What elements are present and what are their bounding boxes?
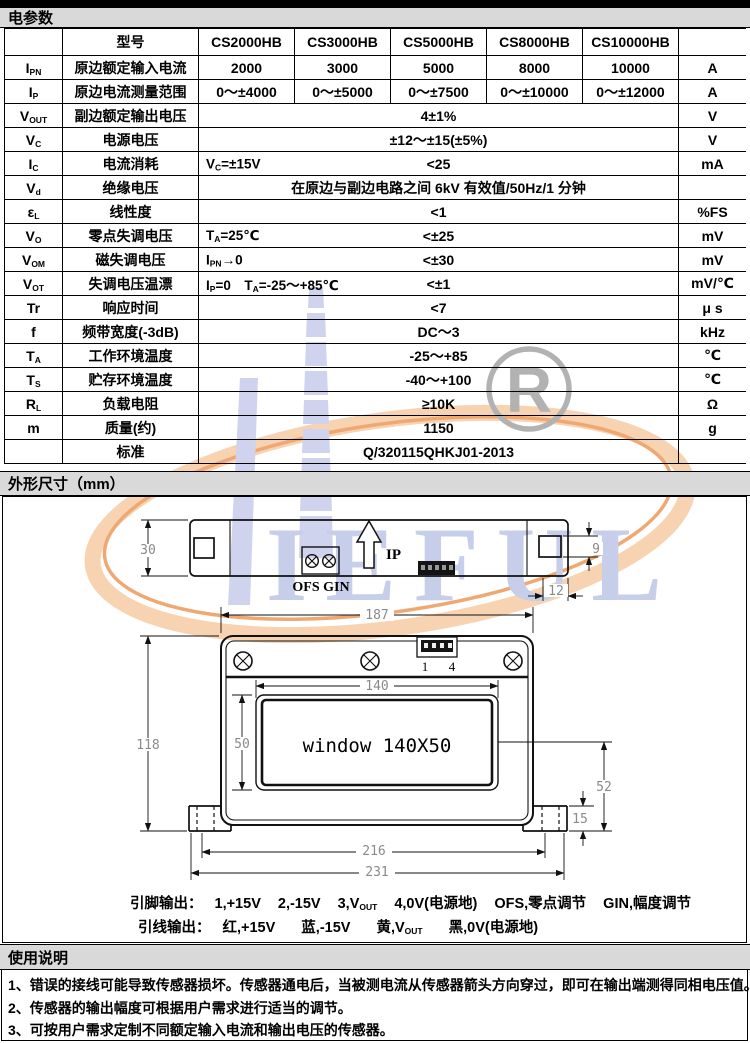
value-text: 4±1% — [421, 108, 457, 124]
symbol-cell: IPN — [5, 56, 63, 80]
subscript: OUT — [359, 902, 377, 912]
spec-row: RL负载电阻≥10KΩ — [5, 392, 747, 416]
subscript: P — [33, 91, 39, 101]
symbol-cell: VC — [5, 128, 63, 152]
merged-value-cell: 4±1% — [199, 104, 679, 128]
pin-number-first: 1 — [422, 659, 429, 674]
electrical-parameters-table: 型号CS2000HBCS3000HBCS5000HBCS8000HBCS1000… — [4, 28, 746, 471]
symbol-cell: VOM — [5, 248, 63, 272]
condition-text: VC=±15V — [206, 156, 260, 171]
pinout-label: 引线输出： — [138, 920, 211, 936]
value-cell: 10000 — [583, 56, 679, 80]
model-name-cell: CS8000HB — [487, 29, 583, 56]
terminal-block — [302, 547, 339, 574]
side-view-drawing — [141, 520, 598, 601]
value-cell: 3000 — [295, 56, 391, 80]
subscript: OM — [31, 259, 45, 269]
dim-label: 50 — [234, 737, 250, 752]
spec-row: TA工作环境温度-25～+85℃ — [5, 344, 747, 368]
spec-row: Tr响应时间<7μ s — [5, 296, 747, 320]
pinout-item: 黑,0V(电源地) — [449, 920, 538, 936]
spec-row: εL线性度<1%FS — [5, 200, 747, 224]
merged-value-cell: <7 — [199, 296, 679, 320]
pinout-pins-line: 引脚输出：1,+15V2,-15V3,VOUT4,0V(电源地)OFS,零点调节… — [130, 892, 708, 913]
unit-header-cell — [679, 29, 747, 56]
parameter-name-cell: 电源电压 — [63, 128, 199, 152]
model-header-row: 型号CS2000HBCS3000HBCS5000HBCS8000HBCS1000… — [5, 29, 747, 56]
parameter-name-cell: 标准 — [63, 440, 199, 464]
dim-label: 12 — [548, 584, 564, 599]
value-text: -40～+100 — [406, 372, 472, 388]
ip-arrow-icon — [357, 521, 381, 568]
dim-118 — [140, 636, 219, 831]
subscript: L — [34, 211, 39, 221]
symbol-cell: IC — [5, 152, 63, 176]
screw-icon — [234, 652, 522, 670]
value-text: ≥10K — [422, 396, 455, 412]
value-cell: 0～±7500 — [391, 80, 487, 104]
parameter-name-cell: 失调电压温漂 — [63, 272, 199, 296]
unit-cell: Ω — [679, 392, 747, 416]
parameter-name-cell: 电流消耗 — [63, 152, 199, 176]
section-title: 使用说明 — [8, 947, 68, 968]
subscript: OT — [32, 283, 44, 293]
model-row-label: 型号 — [63, 29, 199, 56]
unit-cell: g — [679, 416, 747, 440]
subscript: A — [35, 355, 41, 365]
subscript: C — [35, 139, 41, 149]
dim-label: 9 — [592, 542, 600, 557]
merged-value-cell: IPN→0<±30 — [199, 248, 679, 272]
condition-text: TA=25℃ — [206, 228, 260, 244]
merged-value-cell: IP=0 TA=-25～+85℃<±1 — [199, 272, 679, 296]
spec-row: IPN原边额定输入电流200030005000800010000A — [5, 56, 747, 80]
merged-value-cell: Q/320115QHKJ01-2013 — [199, 440, 679, 464]
symbol-cell: TA — [5, 344, 63, 368]
merged-value-cell: DC～3 — [199, 320, 679, 344]
unit-cell: ℃ — [679, 344, 747, 368]
dim-label: 231 — [365, 865, 388, 880]
spec-row: Vd绝缘电压在原边与副边电路之间 6kV 有效值/50Hz/1 分钟 — [5, 176, 747, 200]
value-text: <±30 — [423, 252, 454, 268]
subscript: A — [253, 284, 259, 294]
symbol-cell: f — [5, 320, 63, 344]
section-header-outline: 外形尺寸（mm） — [0, 471, 750, 496]
usage-notes: 1、错误的接线可能导致传感器损坏。传感器通电后，当被测电流从传感器箭头方向穿过，… — [1, 970, 748, 1041]
symbol-cell: m — [5, 416, 63, 440]
value-text: 1150 — [423, 420, 453, 436]
parameter-name-cell: 响应时间 — [63, 296, 199, 320]
spec-row: VOT失调电压温漂IP=0 TA=-25～+85℃<±1mV/℃ — [5, 272, 747, 296]
symbol-cell: Tr — [5, 296, 63, 320]
model-name-cell: CS5000HB — [391, 29, 487, 56]
parameter-name-cell: 零点失调电压 — [63, 224, 199, 248]
symbol-cell: IP — [5, 80, 63, 104]
pinout-wires-line: 引线输出：红,+15V蓝,-15V黄,VOUT黑,0V(电源地) — [138, 916, 564, 937]
corner-cell — [5, 29, 63, 56]
merged-value-cell: -25～+85 — [199, 344, 679, 368]
value-cell: 2000 — [199, 56, 295, 80]
dim-label: 52 — [596, 780, 612, 795]
spec-row: m质量(约)1150g — [5, 416, 747, 440]
subscript: OUT — [29, 115, 47, 125]
value-text: <±1 — [427, 276, 451, 292]
value-text: <±25 — [423, 228, 454, 244]
dim-label: 118 — [136, 738, 159, 753]
parameter-name-cell: 磁失调电压 — [63, 248, 199, 272]
unit-cell: mV — [679, 224, 747, 248]
spec-row: 标准Q/320115QHKJ01-2013 — [5, 440, 747, 464]
value-text: -25～+85 — [410, 348, 468, 364]
merged-value-cell: 1150 — [199, 416, 679, 440]
merged-value-cell: ≥10K — [199, 392, 679, 416]
merged-value-cell: <1 — [199, 200, 679, 224]
pinout-item: GIN,幅度调节 — [603, 896, 691, 912]
value-text: 在原边与副边电路之间 6kV 有效值/50Hz/1 分钟 — [291, 180, 586, 196]
pinout-item: 3,VOUT — [338, 896, 378, 912]
condition-text: IP=0 TA=-25～+85℃ — [206, 274, 339, 294]
symbol-cell: VOUT — [5, 104, 63, 128]
section-header-usage: 使用说明 — [0, 944, 750, 970]
spec-row: IP原边电流测量范围0～±40000～±50000～±75000～±100000… — [5, 80, 747, 104]
top-black-bar — [0, 0, 750, 7]
value-cell: 0～±12000 — [583, 80, 679, 104]
subscript: L — [36, 403, 41, 413]
merged-value-cell: -40～+100 — [199, 368, 679, 392]
model-name-cell: CS10000HB — [583, 29, 679, 56]
subscript: d — [36, 187, 41, 197]
condition-text: IPN→0 — [206, 252, 243, 267]
value-text: Q/320115QHKJ01-2013 — [363, 444, 514, 460]
symbol-cell: εL — [5, 200, 63, 224]
unit-cell: %FS — [679, 200, 747, 224]
pinout-item: 红,+15V — [223, 920, 276, 936]
subscript: S — [35, 379, 41, 389]
subscript: PN — [210, 258, 222, 268]
pinout-label: 引脚输出： — [130, 896, 203, 912]
model-name-cell: CS3000HB — [295, 29, 391, 56]
unit-cell: mV/℃ — [679, 272, 747, 296]
dimension-drawing: 30 9 12 187 140 50 118 52 15 216 231 OFS… — [0, 496, 750, 880]
unit-cell: μ s — [679, 296, 747, 320]
merged-value-cell: ±12～±15(±5%) — [199, 128, 679, 152]
value-text: <25 — [427, 156, 451, 172]
mount-slot — [194, 538, 214, 558]
unit-cell: A — [679, 56, 747, 80]
dim-label: 30 — [140, 543, 156, 558]
unit-cell: V — [679, 128, 747, 152]
note-line: 2、传感器的输出幅度可根据用户需求进行适当的调节。 — [8, 997, 741, 1020]
parameter-name-cell: 工作环境温度 — [63, 344, 199, 368]
ip-arrow-label: IP — [386, 547, 401, 563]
pinout-item: 1,+15V — [215, 896, 261, 912]
spec-row: VC电源电压±12～±15(±5%)V — [5, 128, 747, 152]
symbol-cell: TS — [5, 368, 63, 392]
section-title: 外形尺寸（mm） — [8, 473, 125, 494]
pinout-item: 4,0V(电源地) — [394, 896, 477, 912]
unit-cell: kHz — [679, 320, 747, 344]
spec-row: VOUT副边额定输出电压4±1%V — [5, 104, 747, 128]
value-text: ±12～±15(±5%) — [390, 132, 488, 148]
parameter-name-cell: 绝缘电压 — [63, 176, 199, 200]
spec-row: TS贮存环境温度-40～+100℃ — [5, 368, 747, 392]
note-line: 1、错误的接线可能导致传感器损坏。传感器通电后，当被测电流从传感器箭头方向穿过，… — [8, 974, 741, 997]
note-line: 3、可按用户需求定制不同额定输入电流和输出电压的传感器。 — [8, 1019, 741, 1042]
symbol-cell — [5, 440, 63, 464]
mounting-flanges — [189, 806, 567, 831]
unit-cell — [679, 440, 747, 464]
value-text: <1 — [431, 204, 447, 220]
unit-cell: A — [679, 80, 747, 104]
unit-cell: ℃ — [679, 368, 747, 392]
model-name-cell: CS2000HB — [199, 29, 295, 56]
subscript: C — [32, 163, 38, 173]
spec-row: f频带宽度(-3dB)DC～3kHz — [5, 320, 747, 344]
pin-number-last: 4 — [449, 659, 456, 674]
value-cell: 5000 — [391, 56, 487, 80]
value-cell: 8000 — [487, 56, 583, 80]
window-size-label: window 140X50 — [303, 735, 452, 757]
screw-icon — [306, 555, 336, 568]
pinout-item: 2,-15V — [278, 896, 321, 912]
value-cell: 0～±4000 — [199, 80, 295, 104]
value-text: <7 — [431, 300, 447, 316]
section-header-electrical: 电参数 — [0, 7, 750, 28]
params-table: 型号CS2000HBCS3000HBCS5000HBCS8000HBCS1000… — [4, 28, 746, 464]
unit-cell: mA — [679, 152, 747, 176]
symbol-cell: VOT — [5, 272, 63, 296]
unit-cell: V — [679, 104, 747, 128]
subscript: OUT — [405, 926, 423, 936]
parameter-name-cell: 原边电流测量范围 — [63, 80, 199, 104]
parameter-name-cell: 负载电阻 — [63, 392, 199, 416]
value-cell: 0～±5000 — [295, 80, 391, 104]
parameter-name-cell: 质量(约) — [63, 416, 199, 440]
spec-row: IC电流消耗VC=±15V<25mA — [5, 152, 747, 176]
subscript: P — [210, 284, 216, 294]
dim-label: 187 — [365, 608, 388, 623]
pinout-item: 蓝,-15V — [301, 920, 350, 936]
symbol-cell: RL — [5, 392, 63, 416]
section-title: 电参数 — [8, 7, 53, 28]
merged-value-cell: TA=25℃<±25 — [199, 224, 679, 248]
dim-label: 15 — [572, 812, 588, 827]
parameter-name-cell: 频带宽度(-3dB) — [63, 320, 199, 344]
unit-cell — [679, 176, 747, 200]
pinout-item: 黄,VOUT — [376, 920, 422, 936]
dim-label: 216 — [362, 844, 385, 859]
merged-value-cell: 在原边与副边电路之间 6kV 有效值/50Hz/1 分钟 — [199, 176, 679, 200]
subscript: C — [215, 162, 221, 172]
mount-slot — [539, 536, 561, 557]
symbol-cell: VO — [5, 224, 63, 248]
parameter-name-cell: 原边额定输入电流 — [63, 56, 199, 80]
spec-row: VO零点失调电压TA=25℃<±25mV — [5, 224, 747, 248]
pinout-item: OFS,零点调节 — [494, 896, 586, 912]
terminal-labels: OFS GIN — [292, 580, 349, 595]
subscript: PN — [30, 67, 42, 77]
spec-row: VOM磁失调电压IPN→0<±30mV — [5, 248, 747, 272]
value-text: DC～3 — [417, 324, 459, 340]
parameter-name-cell: 副边额定输出电压 — [63, 104, 199, 128]
parameter-name-cell: 线性度 — [63, 200, 199, 224]
subscript: A — [214, 234, 220, 244]
parameter-name-cell: 贮存环境温度 — [63, 368, 199, 392]
dim-label: 140 — [365, 679, 388, 694]
symbol-cell: Vd — [5, 176, 63, 200]
datasheet-page: IEFUL R 电参数 外形尺寸（mm） 使用说明 型号CS2000HBCS30… — [0, 0, 750, 1043]
unit-cell: mV — [679, 248, 747, 272]
subscript: O — [35, 235, 42, 245]
value-cell: 0～±10000 — [487, 80, 583, 104]
merged-value-cell: VC=±15V<25 — [199, 152, 679, 176]
